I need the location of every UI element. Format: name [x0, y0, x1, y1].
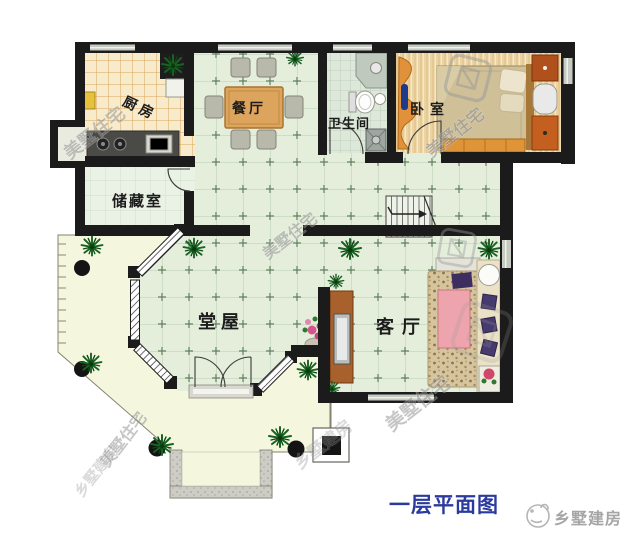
wall-storage-bottom	[75, 225, 250, 236]
bathroom-door-opening	[327, 153, 365, 163]
window	[218, 45, 292, 51]
pillow	[499, 93, 524, 113]
wall-kitchen-divider	[184, 42, 194, 136]
water-heater	[533, 84, 557, 114]
wall-south-bath	[365, 152, 403, 163]
side-table	[479, 265, 500, 286]
plant-icon	[298, 361, 319, 380]
cabinet-knob	[543, 131, 547, 135]
plant-icon	[162, 55, 184, 75]
flower-icon	[305, 319, 311, 325]
bay-window	[131, 280, 140, 340]
tv-screen	[337, 318, 347, 360]
cushion	[451, 272, 472, 289]
storage-door-opening	[185, 168, 195, 192]
plant-icon	[81, 354, 102, 373]
leaf-icon	[492, 380, 497, 385]
brand-name: 乡墅建房	[554, 509, 622, 528]
floor-plan-canvas: 厨房 餐厅 卫生间 卧室 储藏室 堂屋 客厅 美墅住宅 美墅住宅 美墅住宅 美墅…	[0, 0, 640, 547]
shower-drain-icon	[371, 63, 382, 74]
window	[564, 58, 573, 84]
room-label-living: 客厅	[376, 316, 428, 337]
stove-burner-center	[101, 142, 105, 146]
flower-icon	[308, 326, 317, 335]
washer-door-icon	[372, 136, 380, 144]
wall-bath-right	[387, 42, 396, 155]
room-label-hall: 堂屋	[198, 311, 244, 332]
watermark-text: 乡墅建房	[71, 442, 122, 500]
nightstand-knob	[543, 66, 547, 70]
plant-icon	[82, 237, 103, 256]
window	[333, 45, 372, 51]
room-label-dining: 餐厅	[231, 100, 266, 116]
dining-chair	[257, 130, 276, 149]
leaf-icon	[482, 379, 487, 384]
kitchen-door-opening	[185, 135, 195, 158]
window	[408, 45, 470, 51]
wall-bath-left	[318, 42, 327, 155]
plant-icon	[184, 239, 205, 258]
room-label-storage: 储藏室	[112, 192, 163, 210]
kitchen-sink-basin	[150, 138, 168, 150]
sink-icon	[375, 94, 386, 105]
wall-kitchen-bottom	[75, 156, 195, 167]
dining-chair	[285, 96, 303, 118]
plant-icon	[151, 435, 173, 455]
plant-icon	[479, 240, 500, 259]
leaf-icon	[303, 328, 308, 333]
wall-right	[500, 152, 513, 403]
flue	[50, 120, 58, 168]
flue	[50, 120, 85, 127]
brand-logo-icon	[527, 505, 549, 527]
wall-tv	[318, 287, 330, 393]
plant-icon	[269, 427, 291, 447]
wardrobe-accent	[401, 84, 408, 110]
toilet-tank	[349, 92, 356, 112]
floor-caption: 一层平面图	[389, 494, 499, 517]
floor-plan-page: 厨房 餐厅 卫生间 卧室 储藏室 堂屋 客厅 美墅住宅 美墅住宅 美墅住宅 美墅…	[0, 0, 640, 547]
plant-icon	[328, 274, 343, 288]
dining-chair	[231, 58, 250, 77]
flower-icon	[484, 369, 495, 380]
dining-chair	[231, 130, 250, 149]
dining-chair	[257, 58, 276, 77]
leaf-icon	[313, 317, 318, 322]
room-label-bathroom: 卫生间	[328, 116, 370, 131]
dining-chair	[205, 96, 223, 118]
column-icon	[74, 260, 90, 276]
porch-steps	[170, 450, 272, 498]
stove-burner-center	[118, 142, 122, 146]
brand-watermark: 乡墅建房	[527, 505, 622, 528]
window	[90, 45, 135, 51]
plant-icon	[339, 239, 361, 259]
room-label-bedroom: 卧室	[410, 101, 450, 117]
pillow	[499, 68, 528, 93]
wall-hall-top	[303, 225, 513, 236]
window	[502, 240, 511, 268]
